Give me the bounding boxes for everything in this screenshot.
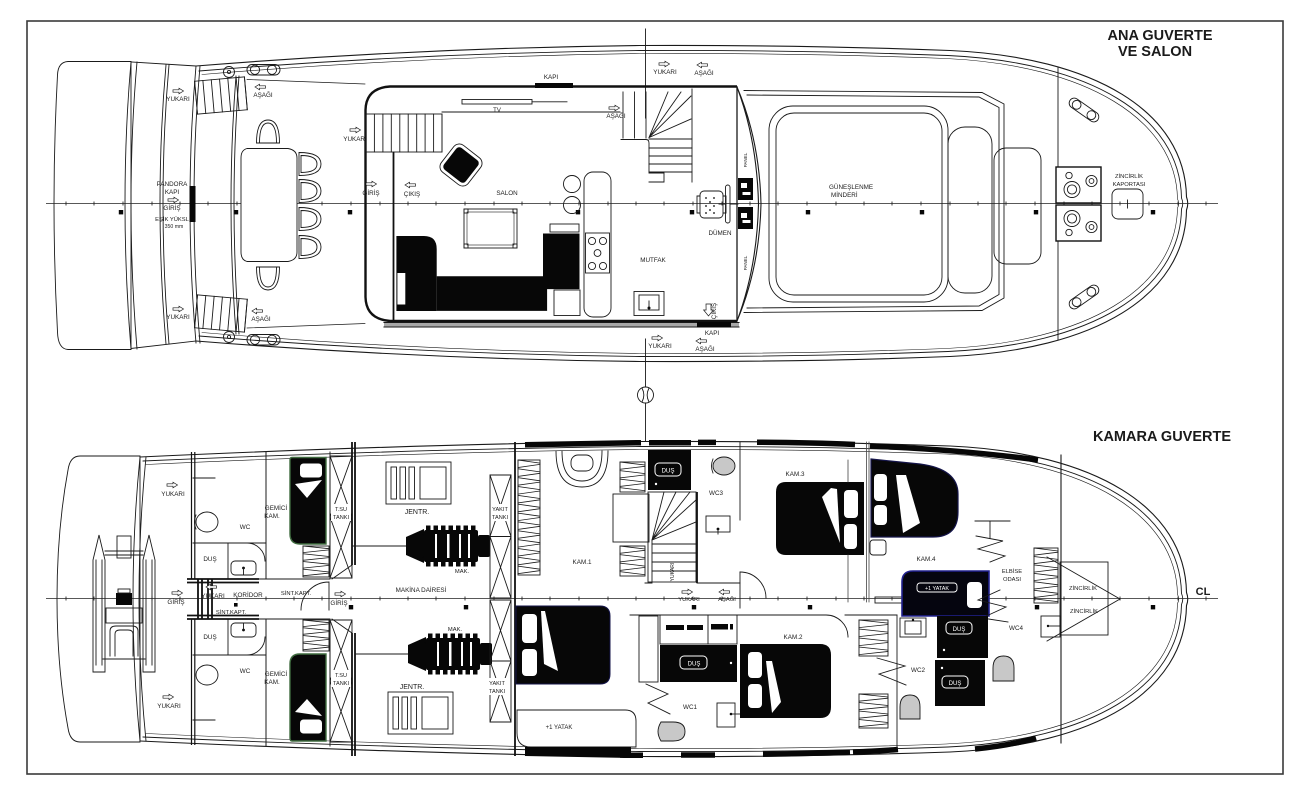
svg-text:PANEL: PANEL	[743, 255, 748, 270]
svg-text:GEMİCİ: GEMİCİ	[265, 669, 288, 678]
svg-text:KAMARA GUVERTE: KAMARA GUVERTE	[1093, 429, 1231, 445]
svg-text:AŞAĞI: AŞAĞI	[253, 90, 272, 99]
svg-text:PANDORA: PANDORA	[157, 181, 188, 188]
svg-text:YUKARI: YUKARI	[678, 597, 700, 603]
svg-text:DUŞ: DUŞ	[203, 634, 216, 641]
svg-text:T.SU: T.SU	[335, 673, 347, 679]
svg-text:ZİNCİRLİK: ZİNCİRLİK	[1115, 173, 1143, 180]
svg-text:GİRİŞ: GİRİŞ	[330, 598, 347, 607]
svg-text:WC4: WC4	[1009, 625, 1023, 632]
svg-text:YUKARI: YUKARI	[670, 563, 676, 582]
svg-text:KAM.: KAM.	[264, 513, 280, 520]
svg-text:ZİNCİRLİK: ZİNCİRLİK	[1069, 585, 1097, 592]
svg-text:JENTR.: JENTR.	[405, 509, 430, 516]
svg-text:MAKİNA DAİRESİ: MAKİNA DAİRESİ	[396, 585, 447, 594]
svg-text:WC: WC	[240, 668, 251, 675]
svg-text:WC3: WC3	[709, 490, 723, 497]
svg-text:JENTR.: JENTR.	[400, 684, 425, 691]
svg-text:WC: WC	[240, 524, 251, 531]
svg-text:DÜMEN: DÜMEN	[708, 229, 732, 237]
svg-text:ELBİSE: ELBİSE	[1002, 568, 1022, 575]
svg-text:TANKI: TANKI	[333, 515, 350, 521]
svg-text:YUKARI: YUKARI	[166, 314, 190, 321]
svg-text:YUKARI: YUKARI	[157, 703, 181, 710]
svg-text:DUŞ: DUŞ	[949, 681, 962, 687]
svg-text:KAM.2: KAM.2	[784, 634, 803, 641]
svg-text:ANA GUVERTE: ANA GUVERTE	[1108, 28, 1213, 44]
svg-text:TV: TV	[493, 108, 501, 114]
svg-text:AŞAĞI: AŞAĞI	[718, 596, 736, 603]
svg-text:MİNDERİ: MİNDERİ	[831, 190, 858, 199]
svg-text:TANKI: TANKI	[492, 515, 509, 521]
svg-text:KAM.4: KAM.4	[917, 556, 936, 563]
svg-text:KAM.: KAM.	[264, 679, 280, 686]
svg-text:KAPI: KAPI	[705, 330, 720, 337]
svg-text:KAM.1: KAM.1	[573, 559, 592, 566]
svg-text:GÜNEŞLENME: GÜNEŞLENME	[829, 183, 873, 191]
svg-text:WC1: WC1	[683, 704, 697, 711]
svg-text:TANKI: TANKI	[489, 689, 506, 695]
svg-text:EŞİK YÜKSL: EŞİK YÜKSL	[155, 216, 190, 223]
svg-text:KAM.3: KAM.3	[786, 471, 805, 478]
svg-text:MAK.: MAK.	[455, 569, 470, 575]
svg-text:YUKARI: YUKARI	[653, 69, 677, 76]
svg-text:+1 YATAK: +1 YATAK	[546, 725, 573, 731]
svg-text:TANKI: TANKI	[333, 681, 350, 687]
svg-text:GİRİŞ: GİRİŞ	[167, 597, 184, 606]
svg-text:DUŞ: DUŞ	[661, 468, 674, 475]
svg-text:KAPI: KAPI	[544, 74, 559, 81]
svg-text:VE SALON: VE SALON	[1118, 44, 1192, 60]
svg-text:WC2: WC2	[911, 667, 925, 674]
svg-text:YUKARI: YUKARI	[343, 136, 367, 143]
svg-text:SİNT.KAPT.: SİNT.KAPT.	[281, 590, 312, 597]
svg-text:ZİNCİRLİK: ZİNCİRLİK	[1070, 608, 1098, 615]
svg-text:YUKARI: YUKARI	[648, 343, 672, 350]
svg-text:SALON: SALON	[496, 190, 518, 197]
svg-text:CL: CL	[1196, 586, 1211, 598]
svg-text:MAK.: MAK.	[448, 627, 463, 633]
svg-text:YAKIT: YAKIT	[492, 507, 508, 513]
svg-text:PANEL: PANEL	[743, 152, 748, 167]
svg-text:ODASI: ODASI	[1003, 577, 1021, 583]
svg-text:DUŞ: DUŞ	[688, 662, 701, 668]
svg-text:YUKARI: YUKARI	[166, 96, 190, 103]
svg-text:AŞAĞI: AŞAĞI	[694, 68, 713, 77]
svg-text:YAKIT: YAKIT	[489, 681, 505, 687]
svg-text:GİRİŞ: GİRİŞ	[362, 188, 379, 197]
svg-text:GİRİŞ: GİRİŞ	[163, 203, 180, 212]
svg-text:YUKARI: YUKARI	[161, 491, 185, 498]
svg-text:350 mm: 350 mm	[165, 224, 184, 230]
svg-text:+1 YATAK: +1 YATAK	[925, 586, 949, 592]
svg-text:DUŞ: DUŞ	[953, 627, 966, 633]
svg-text:AŞAĞI: AŞAĞI	[251, 314, 270, 323]
svg-text:YUKARI: YUKARI	[201, 593, 225, 600]
svg-text:T.SU: T.SU	[335, 507, 347, 513]
svg-text:AŞAĞI: AŞAĞI	[695, 344, 714, 353]
svg-text:GEMİCİ: GEMİCİ	[265, 503, 288, 512]
svg-text:DUŞ: DUŞ	[203, 556, 216, 563]
svg-text:SİNT.KAPT.: SİNT.KAPT.	[216, 609, 247, 616]
svg-text:KAPORTASI: KAPORTASI	[1113, 182, 1146, 188]
svg-text:KORİDOR: KORİDOR	[233, 590, 263, 599]
svg-text:ÇIKIŞ: ÇIKIŞ	[404, 191, 420, 198]
svg-text:KAPI: KAPI	[165, 189, 180, 196]
svg-text:AŞAĞI: AŞAĞI	[606, 111, 625, 120]
svg-text:MUTFAK: MUTFAK	[640, 257, 666, 264]
